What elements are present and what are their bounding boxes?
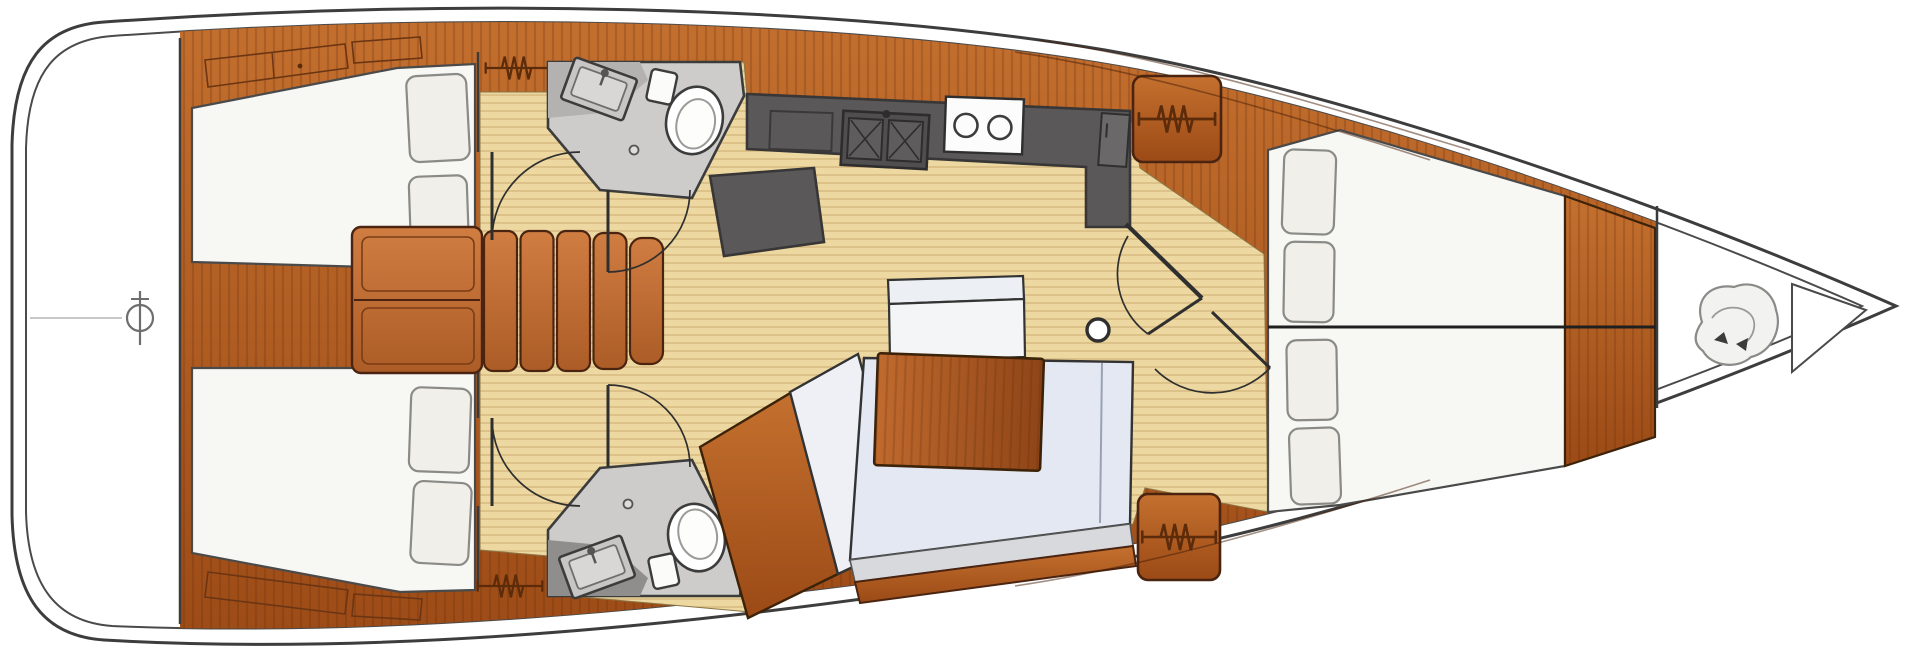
drain: [624, 500, 633, 509]
pillow: [1286, 340, 1337, 421]
knob: [298, 64, 303, 69]
berth-foot-grain: [1565, 196, 1655, 466]
hanging-locker-forward-starboard: [1138, 494, 1220, 580]
galley-double-sink-icon: [841, 108, 930, 169]
pillow: [1282, 149, 1337, 235]
refrigerator-icon: [1098, 113, 1130, 167]
floor-plan-svg: [0, 0, 1920, 658]
yacht-floor-plan: [0, 0, 1920, 658]
galley-island: [710, 168, 824, 256]
pillow: [1289, 427, 1342, 505]
hanging-locker-forward-port: [1133, 76, 1221, 162]
mast-compression-post: [1087, 319, 1109, 341]
pillow: [1283, 242, 1334, 323]
pillow: [406, 73, 470, 162]
dining-table: [874, 353, 1044, 471]
companionway-steps: [352, 227, 663, 373]
pillow: [409, 387, 472, 473]
bench-seat: [888, 276, 1025, 361]
drain: [630, 146, 639, 155]
stove-icon: [944, 97, 1024, 155]
pillow: [410, 481, 472, 566]
bench-cushion: [889, 299, 1025, 361]
steps: [484, 231, 663, 371]
